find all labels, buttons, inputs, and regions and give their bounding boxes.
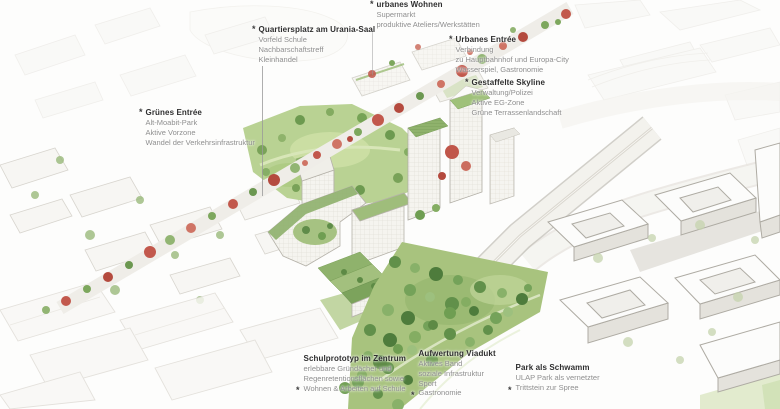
masterplan-illustration [0, 0, 780, 409]
callout-line: Verwaltung/Polizei [472, 88, 562, 98]
callout-urbanes-wohnen: * urbanes Wohnen Supermarkt produktive A… [370, 0, 480, 30]
callout-line: zu Hauptbahnhof und Europa-City [456, 55, 569, 65]
callout-schulprototyp: * Schulprototyp im Zentrum erlebbare Grü… [297, 354, 406, 393]
callout-line: produktive Ateliers/Werkstätten [377, 20, 480, 30]
callout-gruenes-entree: * Grünes Entrée Alt-Moabit-Park Aktive V… [139, 108, 255, 147]
callout-line: Wohnen & Arbeiten auf Schule [304, 384, 406, 394]
asterisk-marker: * [411, 391, 415, 400]
callout-line: Gastronomie [419, 388, 496, 398]
callout-gestaffelte-skyline: * Gestaffelte Skyline Verwaltung/Polizei… [465, 78, 561, 117]
callout-line: erlebbare Gründächer und [304, 364, 406, 374]
callout-urbanes-entree: * Urbanes Entrée Verbindung zu Hauptbahn… [449, 35, 569, 74]
callout-line: Aktives Band [419, 359, 496, 369]
callout-line: Kleinhandel [259, 55, 376, 65]
callout-line: Aktive EG-Zone [472, 98, 562, 108]
callout-line: Verbindung [456, 45, 569, 55]
callout-park-als-schwamm: * Park als Schwamm ULAP Park als vernetz… [509, 363, 600, 393]
callout-line: Vorfeld Schule [259, 35, 376, 45]
callout-line: Sport [419, 379, 496, 389]
callout-line: ULAP Park als vernetzter [516, 373, 600, 383]
callout-title: Aufwertung Viadukt [419, 349, 496, 359]
callout-line: Supermarkt [377, 10, 480, 20]
callout-title: Schulprototyp im Zentrum [304, 354, 406, 364]
asterisk-marker: * [252, 25, 256, 64]
callout-title: urbanes Wohnen [377, 0, 480, 10]
callout-line: Aktive Vorzone [146, 128, 255, 138]
callout-title: Park als Schwamm [516, 363, 600, 373]
callout-line: Trittstein zur Spree [516, 383, 600, 393]
asterisk-marker: * [508, 386, 512, 395]
leader-line-quartiersplatz [262, 66, 263, 196]
asterisk-marker: * [449, 35, 453, 74]
callout-aufwertung-viadukt: * Aufwertung Viadukt Aktives Band sozial… [412, 349, 496, 398]
callout-line: Wasserspiel, Gastronomie [456, 65, 569, 75]
callout-title: Quartiersplatz am Urania-Saal [259, 25, 376, 35]
callout-line: soziale Infrastruktur [419, 369, 496, 379]
callout-quartiersplatz: * Quartiersplatz am Urania-Saal Vorfeld … [252, 25, 375, 64]
masterplan-figure: * Quartiersplatz am Urania-Saal Vorfeld … [0, 0, 780, 409]
callout-line: Wandel der Verkehrsinfrastruktur [146, 138, 255, 148]
asterisk-marker: * [465, 78, 469, 117]
asterisk-marker: * [139, 108, 143, 147]
callout-line: Regenretentionsflächen sowie [304, 374, 406, 384]
callout-title: Gestaffelte Skyline [472, 78, 562, 88]
asterisk-marker: * [370, 0, 374, 30]
callout-title: Grünes Entrée [146, 108, 255, 118]
callout-title: Urbanes Entrée [456, 35, 569, 45]
callout-line: Nachbarschaftstreff [259, 45, 376, 55]
callout-line: Grüne Terrassenlandschaft [472, 108, 562, 118]
asterisk-marker: * [296, 386, 300, 395]
callout-line: Alt-Moabit-Park [146, 118, 255, 128]
